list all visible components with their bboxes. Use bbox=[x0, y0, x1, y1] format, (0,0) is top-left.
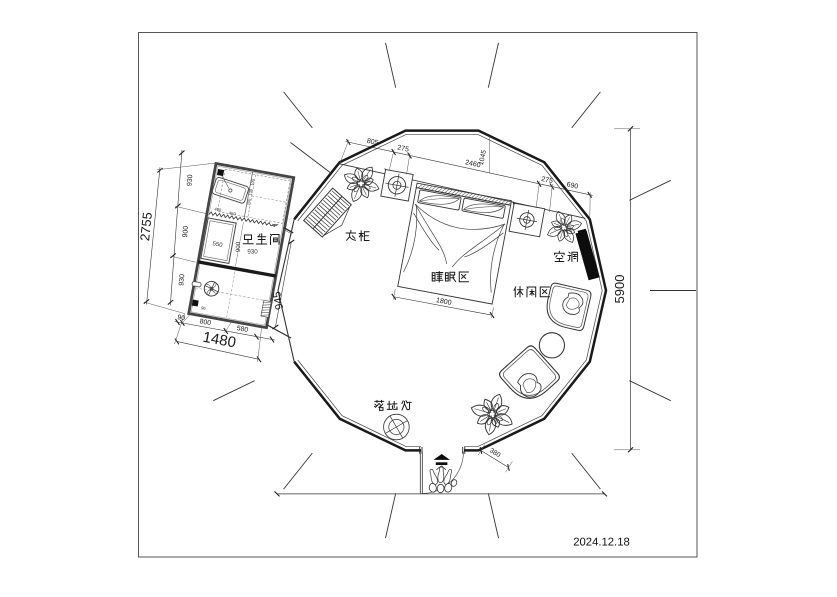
svg-text:930: 930 bbox=[178, 274, 186, 286]
svg-text:930: 930 bbox=[247, 249, 258, 256]
svg-text:2024.12.18: 2024.12.18 bbox=[573, 537, 630, 549]
svg-text:930: 930 bbox=[186, 174, 194, 186]
svg-text:2755: 2755 bbox=[137, 211, 155, 241]
svg-text:900: 900 bbox=[182, 225, 190, 237]
svg-text:90: 90 bbox=[177, 314, 186, 322]
svg-text:900: 900 bbox=[235, 241, 242, 252]
svg-text:5900: 5900 bbox=[612, 275, 627, 304]
